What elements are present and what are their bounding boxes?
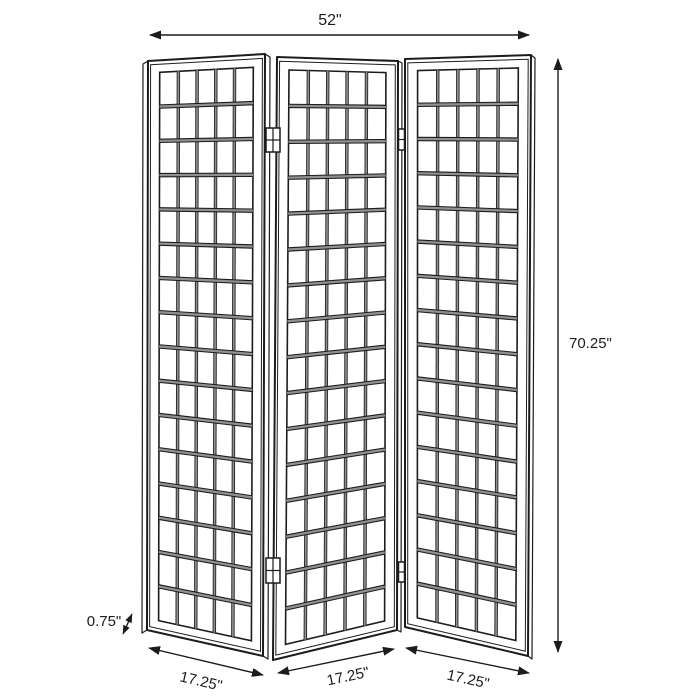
thickness-label: 0.75" [87,613,122,630]
dimension-thickness: 0.75" [87,613,132,634]
panel-width-middle-label: 17.25" [325,664,370,690]
dimension-diagram: 52" 70.25" 0.75" 17.25" 17.25" 17.25" [0,0,700,700]
dimension-height: 70.25" [558,59,612,652]
dimension-panel-width-right: 17.25" [406,648,529,693]
total-width-label: 52" [318,12,341,29]
dimension-total-width: 52" [150,12,529,35]
dimension-panel-width-left: 17.25" [149,648,263,695]
room-divider-diagram-svg: 52" 70.25" 0.75" 17.25" 17.25" 17.25" [0,0,700,700]
height-label: 70.25" [569,335,612,352]
panel-width-left-label: 17.25" [178,669,224,695]
thickness-arrow [123,614,132,634]
panel-width-right-label: 17.25" [445,667,491,693]
room-divider-drawing [142,54,535,660]
